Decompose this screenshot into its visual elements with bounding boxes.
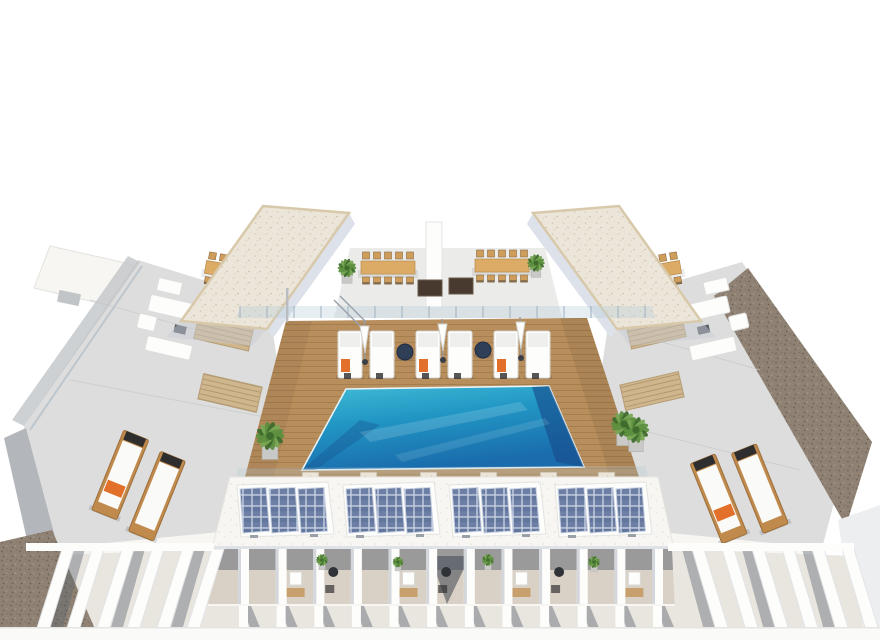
solar-array	[343, 482, 440, 538]
plant-pot	[319, 564, 326, 570]
solar-panel	[587, 488, 617, 534]
plant-pot	[262, 446, 278, 459]
pillar-shade	[652, 549, 655, 606]
balcony-rug	[286, 588, 305, 597]
render-canvas	[0, 0, 880, 640]
balcony-table	[441, 567, 451, 577]
parasol-base	[440, 357, 446, 363]
balcony-table	[328, 567, 338, 577]
balcony-rug	[624, 588, 643, 597]
sun-lounger	[524, 331, 552, 379]
table-top	[361, 261, 415, 274]
bottom-facade-strip	[0, 627, 880, 640]
solar-array	[555, 482, 652, 538]
pillar-shade	[313, 549, 316, 606]
plant-pot	[395, 566, 401, 571]
swimming-pool	[302, 386, 584, 470]
side-stool	[376, 373, 383, 379]
dining-chair	[407, 252, 414, 259]
dining-chair	[363, 252, 370, 259]
plant-pot	[342, 275, 352, 284]
lounger-backrest	[418, 333, 438, 347]
plant-center	[344, 265, 349, 270]
solar-array	[237, 482, 334, 538]
side-stool	[422, 373, 429, 379]
panel-mount	[250, 535, 258, 538]
chair-shadow	[385, 282, 392, 285]
solar-panel	[481, 488, 511, 534]
chair-shadow	[488, 280, 495, 283]
lounger-backrest	[340, 333, 360, 347]
grill	[449, 278, 473, 294]
panel-mount	[356, 535, 364, 538]
panel-mount	[416, 534, 424, 537]
solar-panel	[510, 488, 540, 534]
upper-glass-balustrade	[237, 306, 655, 318]
chair-shadow	[396, 282, 403, 285]
parasol-base	[362, 359, 368, 365]
balcony-stool	[438, 585, 447, 593]
pillar-shade	[501, 549, 504, 606]
solar-panel	[269, 488, 299, 534]
dining-chair	[396, 252, 403, 259]
chair-shadow	[499, 280, 506, 283]
pillar-shade	[539, 549, 542, 606]
pillar-shade	[389, 549, 392, 606]
balcony-level	[200, 549, 684, 634]
plant-center	[397, 561, 400, 564]
solar-panel	[298, 488, 328, 534]
plant-center	[632, 426, 639, 433]
side-stool	[454, 373, 461, 379]
pillar-shade	[577, 549, 580, 606]
table-top	[397, 344, 413, 360]
pillar-shade	[351, 549, 354, 606]
dining-chair	[477, 250, 484, 257]
dining-chair	[488, 250, 495, 257]
sun-lounger	[414, 331, 442, 379]
pillar-shade	[238, 549, 241, 606]
table-top	[475, 259, 529, 272]
table-top	[475, 342, 491, 358]
solar-panel	[558, 488, 588, 534]
pillar-shade	[614, 549, 617, 606]
solar-panel	[404, 488, 434, 534]
dining-table-set	[358, 252, 418, 285]
solar-panel	[616, 488, 646, 534]
solar-panel	[346, 488, 376, 534]
sun-lounger	[336, 331, 364, 379]
balcony-chair	[403, 572, 415, 585]
solar-panel	[375, 488, 405, 534]
balcony-chair	[290, 572, 302, 585]
parasol-base	[518, 355, 524, 361]
solar-panel	[240, 488, 270, 534]
panel-mount	[462, 535, 470, 538]
chair-shadow	[374, 282, 381, 285]
side-stool	[500, 373, 507, 379]
panel-mount	[522, 534, 530, 537]
panel-mount	[568, 535, 576, 538]
solar-panel-parapet	[212, 477, 674, 550]
sun-lounger	[492, 331, 520, 379]
pillar-shade	[426, 549, 429, 606]
orange-towel	[419, 359, 428, 372]
balcony-stool	[325, 585, 334, 593]
balcony-rug	[511, 588, 530, 597]
plant-center	[320, 558, 323, 561]
side-stool	[344, 373, 351, 379]
dining-chair	[510, 250, 517, 257]
plant-center	[266, 432, 274, 440]
solar-panel	[452, 488, 482, 534]
balcony-chair	[628, 572, 640, 585]
balcony-stool	[551, 585, 560, 593]
plant-center	[592, 560, 595, 563]
chair-shadow	[477, 280, 484, 283]
rooftop-aerial-render	[0, 0, 880, 640]
plant-pot	[591, 566, 598, 572]
dining-chair	[521, 250, 528, 257]
pillar-shade	[276, 549, 279, 606]
sun-lounger	[446, 331, 474, 379]
panel-mount	[310, 534, 318, 537]
plant-center	[534, 261, 539, 266]
balcony-chair	[515, 572, 527, 585]
plant-pot	[531, 269, 541, 277]
sun-lounger	[368, 331, 396, 379]
lounger-backrest	[450, 333, 470, 347]
plant-pot	[629, 440, 643, 452]
dining-chair	[208, 252, 216, 260]
dining-table-set	[472, 250, 532, 283]
round-side-table	[474, 342, 492, 359]
panel-mount	[628, 534, 636, 537]
orange-towel	[497, 359, 506, 372]
dining-chair	[385, 252, 392, 259]
right-louver-section	[668, 543, 880, 634]
lounger-backrest	[528, 333, 548, 347]
dining-chair	[374, 252, 381, 259]
left-louver-section	[0, 530, 224, 636]
balcony-rug	[399, 588, 418, 597]
chair-shadow	[510, 280, 517, 283]
chair-shadow	[407, 282, 414, 285]
chair-shadow	[363, 282, 370, 285]
round-side-table	[396, 344, 414, 361]
pillar-shade	[464, 549, 467, 606]
dining-chair	[499, 250, 506, 257]
chair-shadow	[521, 280, 528, 283]
lounger-backrest	[372, 333, 392, 347]
plant-pot	[485, 564, 492, 570]
plant-center	[486, 558, 489, 561]
pool-deck	[233, 288, 650, 492]
dining-chair	[659, 254, 667, 262]
solar-array	[449, 482, 546, 538]
side-stool	[532, 373, 539, 379]
outdoor-shower	[286, 288, 288, 322]
lounger-backrest	[496, 333, 516, 347]
orange-towel	[341, 359, 350, 372]
grill	[418, 280, 442, 296]
balcony-table	[554, 567, 564, 577]
dining-chair	[669, 252, 677, 260]
